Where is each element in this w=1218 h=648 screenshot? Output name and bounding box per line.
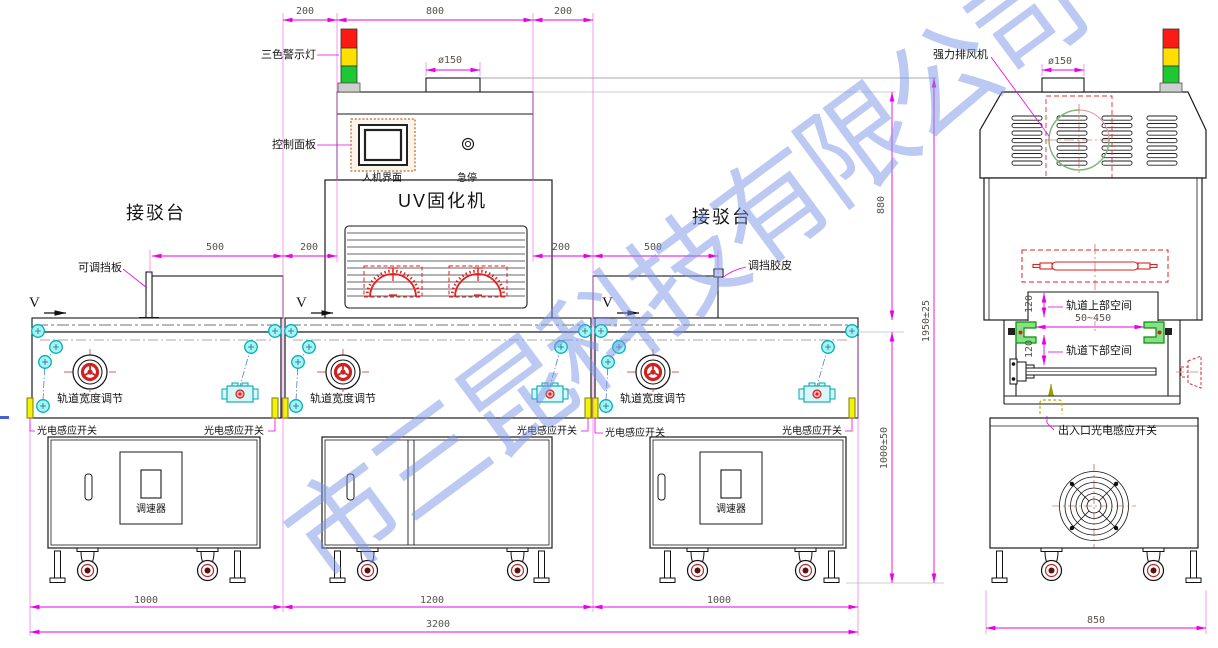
dim-duct-side: ø150 (1048, 57, 1072, 67)
photo-switch-label-5: 光电感应开关 (782, 426, 842, 437)
photo-switch-label-1: 光电感应开关 (37, 426, 97, 437)
adjustable-baffle-label: 可调挡板 (78, 262, 122, 274)
photo-switch-label-2: 光电感应开关 (204, 426, 264, 437)
dim-top-200-left: 200 (296, 7, 314, 17)
upper-space-label: 轨道上部空间 (1066, 300, 1132, 312)
dim-1000-50: 1000±50 (880, 423, 890, 473)
io-photo-switch-label: 出入口光电感应开关 (1058, 425, 1157, 437)
transfer-table-label-left: 接驳台 (126, 204, 186, 224)
photo-sensor-tab (27, 398, 33, 418)
side-conveyor-frame (1004, 320, 1180, 404)
estop-label: 急停 (457, 173, 477, 184)
dim-left-500: 500 (206, 243, 224, 253)
track-width-label-1: 轨道宽度调节 (57, 393, 123, 405)
rubber-stop-label: 调挡胶皮 (748, 260, 792, 272)
dim-50-450: 50~450 (1075, 314, 1111, 324)
door-handle (347, 474, 354, 500)
conveyor-belts (32, 318, 858, 332)
dim-1950: 1950±25 (922, 296, 932, 346)
dim-bottom-1000-right: 1000 (707, 596, 731, 606)
exhaust-duct-side (1042, 78, 1084, 92)
dim-120-lower: 120 (1025, 338, 1035, 360)
io-photo-sensor (1040, 384, 1062, 414)
side-view (980, 29, 1206, 634)
door-handle (85, 474, 92, 500)
dim-top-200-right: 200 (554, 7, 572, 17)
cabinets (48, 437, 846, 548)
exhaust-fan-label: 强力排风机 (933, 49, 988, 61)
track-width-label-3: 轨道宽度调节 (620, 393, 686, 405)
warning-light-tower-front (338, 29, 360, 92)
direction-v-2: V (296, 295, 307, 312)
rubber-stop (714, 269, 723, 277)
rail-bolt (1165, 328, 1172, 335)
dim-duct-front: ø150 (438, 56, 462, 66)
exhaust-duct-front (426, 78, 480, 92)
warning-light-tower-side (1160, 29, 1182, 92)
direction-v-1: V (29, 295, 40, 312)
dim-bottom-1000-left: 1000 (134, 596, 158, 606)
dim-120-upper: 120 (1025, 293, 1035, 315)
photo-switch-label-3: 光电感应开关 (517, 426, 577, 437)
drive-motor (532, 383, 568, 402)
adjustable-baffle-plate (146, 272, 152, 318)
drive-motor (799, 383, 835, 402)
drive-motor (222, 383, 258, 402)
conveyor-tables (27, 325, 858, 418)
dim-right-500: 500 (644, 243, 662, 253)
hmi-label: 人机界面 (362, 173, 402, 184)
estop-button (463, 139, 474, 150)
dim-top-800: 800 (426, 7, 444, 17)
photo-sensor-tab (585, 398, 591, 418)
hmi-screen (351, 119, 415, 171)
dim-bottom-1200: 1200 (420, 596, 444, 606)
control-panel-label: 控制面板 (272, 139, 316, 151)
front-view (27, 13, 944, 636)
rail-bolt (1008, 328, 1015, 335)
rail-bracket-right (1144, 322, 1164, 343)
uv-machine-title: UV固化机 (398, 192, 487, 212)
photo-sensor-tab (849, 398, 855, 418)
dim-850: 850 (1087, 616, 1105, 626)
casters-and-feet (50, 548, 839, 583)
transfer-table-label-right: 接驳台 (692, 208, 752, 228)
side-casters-and-feet (992, 548, 1201, 583)
drawing-linework (0, 0, 1218, 648)
lower-space-label: 轨道下部空间 (1066, 345, 1132, 357)
warning-light-label: 三色警示灯 (261, 49, 316, 61)
margin-tick (0, 416, 9, 419)
photo-switch-label-4: 光电感应开关 (605, 428, 665, 439)
dim-left-200: 200 (300, 243, 318, 253)
door-handle (658, 474, 665, 500)
dim-3200: 3200 (426, 620, 450, 630)
width-adjust-leadscrew (1010, 359, 1156, 384)
cad-drawing-page: 三色警示灯 控制面板 人机界面 急停 UV固化机 接驳台 接驳台 可调挡板 调挡… (0, 0, 1218, 648)
direction-v-3: V (602, 295, 613, 312)
photo-sensor-tab (272, 398, 278, 418)
hood-left (139, 272, 283, 318)
speed-controller-label-2: 调速器 (716, 504, 746, 515)
speed-controller-label-1: 调速器 (136, 504, 166, 515)
track-width-label-2: 轨道宽度调节 (310, 393, 376, 405)
dim-right-200: 200 (552, 243, 570, 253)
dim-880: 880 (877, 192, 887, 218)
